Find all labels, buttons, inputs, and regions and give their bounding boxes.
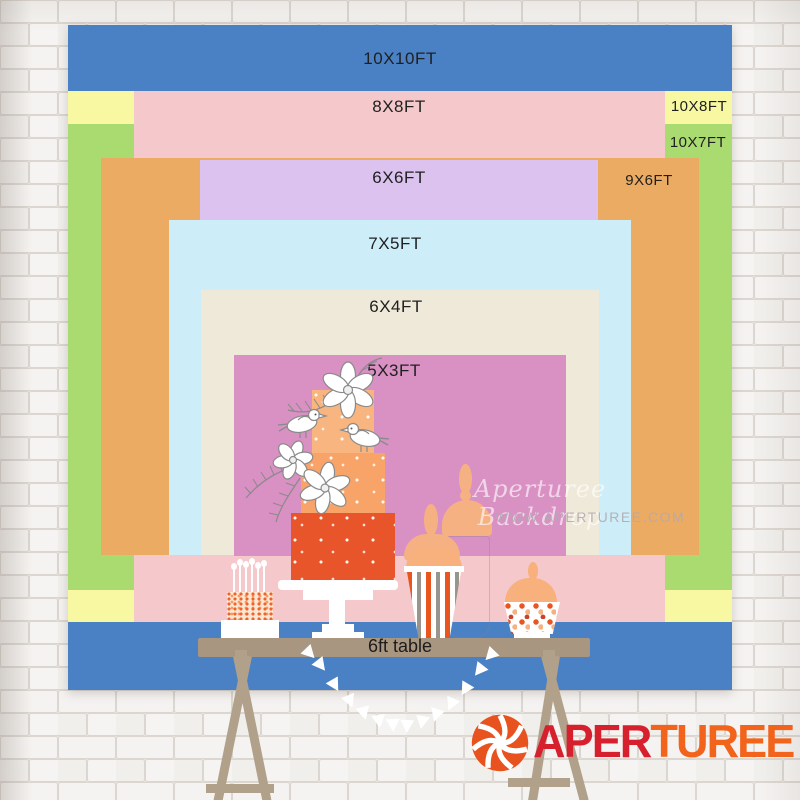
cake-stand-step	[303, 590, 373, 600]
size-label-7x5ft: 7X5FT	[368, 234, 422, 254]
trestle-left-crossbar	[206, 784, 274, 793]
cake-stand-stem	[329, 600, 345, 626]
size-label-8x8ft: 8X8FT	[372, 97, 426, 117]
candle	[257, 569, 259, 594]
watermark-url: WWW.APERTUREE.COM	[495, 509, 675, 525]
brand-logo-text-right: TUREE	[650, 715, 793, 767]
size-label-10x7ft: 10X7FT	[670, 134, 726, 151]
size-label-6x4ft: 6X4FT	[369, 297, 423, 317]
brand-logo-text: APERTUREE	[533, 714, 793, 768]
product-mockup-scene: 10X10FT 8X8FT 10X8FT 10X7FT 6X6FT 9X6FT …	[0, 0, 800, 800]
bunting-flag	[386, 719, 400, 732]
bunting-flag	[371, 714, 387, 729]
table-size-label: 6ft table	[368, 636, 432, 657]
trestle-right-crossbar	[508, 778, 570, 787]
candle	[233, 570, 235, 594]
candle	[251, 565, 253, 594]
popcorn-box-rim	[404, 566, 464, 572]
size-label-6x6ft: 6X6FT	[372, 168, 426, 188]
candle-cake-base	[221, 620, 279, 638]
brand-logo-text-left: APER	[533, 715, 650, 767]
size-label-9x6ft: 9X6FT	[625, 172, 673, 189]
cake-stand-plate	[278, 580, 398, 590]
size-label-10x10ft: 10X10FT	[363, 49, 436, 69]
size-label-10x8ft: 10X8FT	[671, 98, 727, 115]
candle-cake-body	[227, 592, 273, 620]
candle	[263, 567, 265, 594]
cake-stand-base-upper	[322, 624, 354, 632]
candle	[245, 568, 247, 594]
aperture-logo-icon	[470, 713, 530, 773]
candle	[239, 566, 241, 594]
cake-floral-decoration	[230, 350, 430, 580]
bunting-flag	[400, 720, 415, 734]
candy-jar	[504, 602, 560, 634]
popcorn-box-lid	[406, 548, 462, 568]
